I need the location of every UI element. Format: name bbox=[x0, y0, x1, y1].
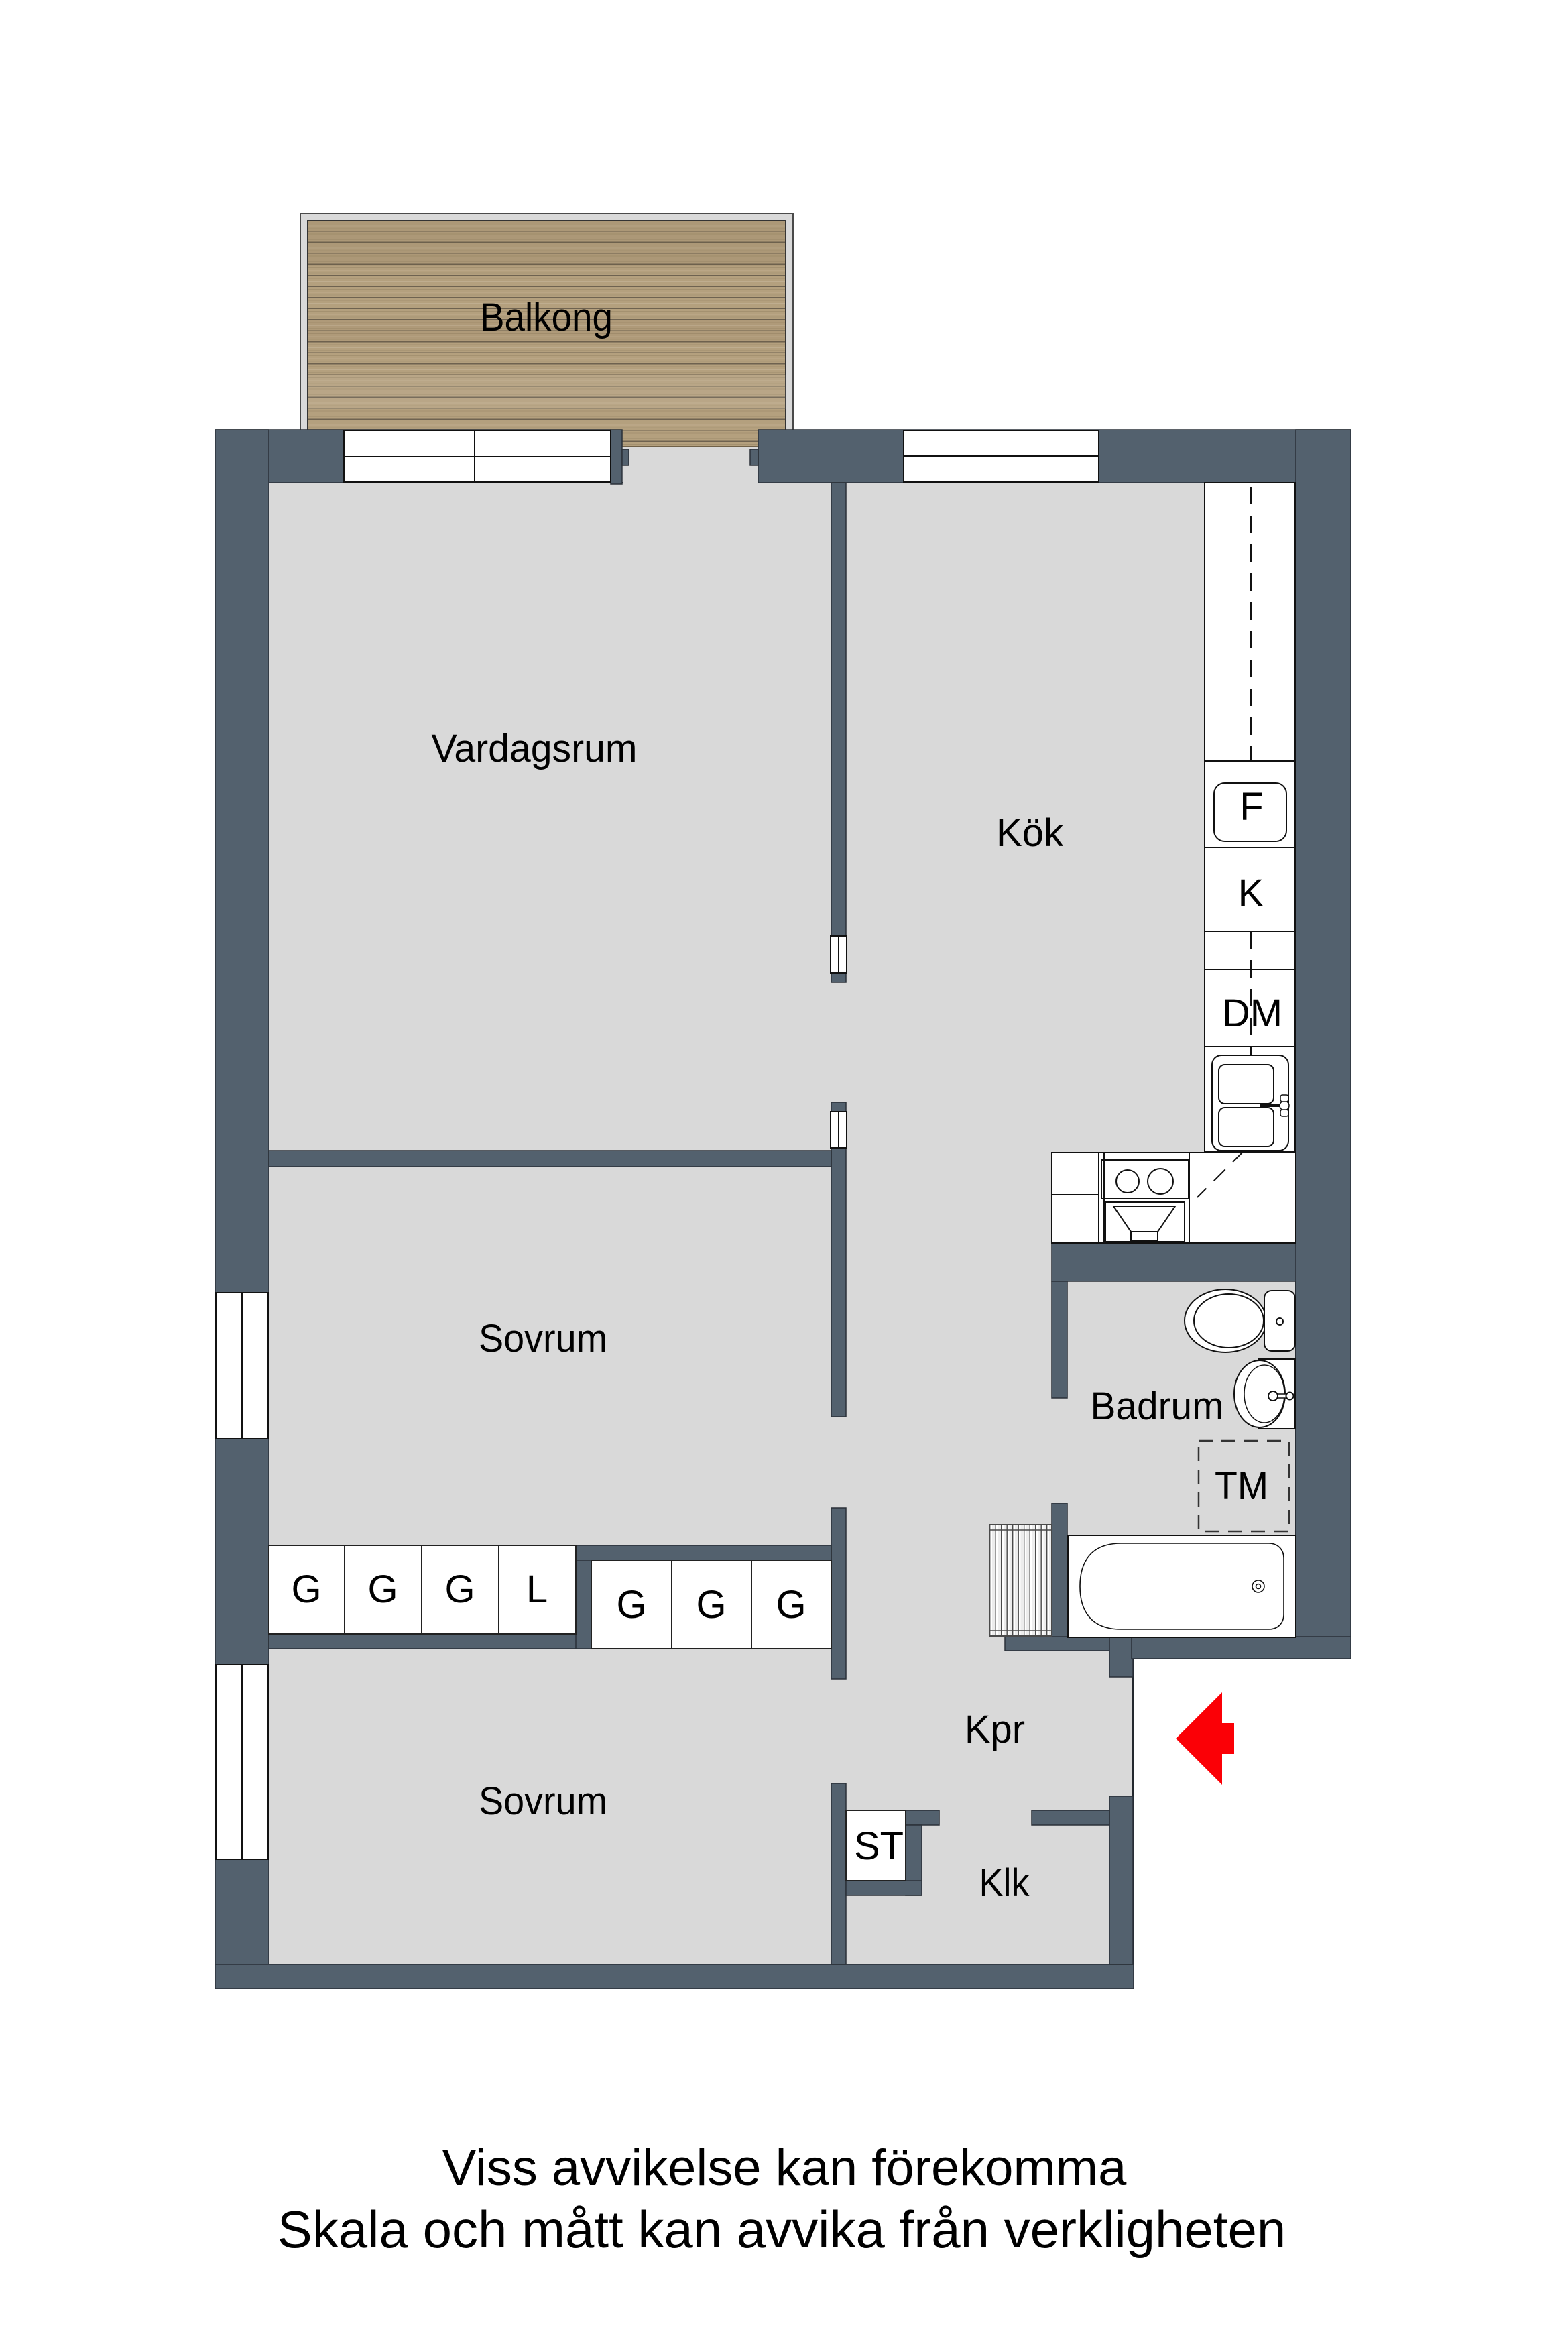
svg-text:ST: ST bbox=[854, 1824, 904, 1868]
svg-text:Balkong: Balkong bbox=[480, 296, 613, 339]
svg-text:G: G bbox=[444, 1568, 475, 1611]
svg-text:F: F bbox=[1240, 785, 1263, 829]
svg-text:Viss avvikelse kan förekomma: Viss avvikelse kan förekomma bbox=[442, 2139, 1128, 2196]
svg-text:Sovrum: Sovrum bbox=[479, 1317, 607, 1360]
svg-text:Sovrum: Sovrum bbox=[479, 1779, 607, 1823]
svg-text:Klk: Klk bbox=[979, 1861, 1030, 1905]
svg-text:TM: TM bbox=[1215, 1464, 1268, 1508]
svg-text:L: L bbox=[526, 1568, 548, 1611]
svg-text:G: G bbox=[696, 1583, 726, 1627]
svg-text:G: G bbox=[776, 1583, 806, 1627]
svg-text:G: G bbox=[367, 1568, 398, 1611]
svg-text:K: K bbox=[1238, 872, 1264, 915]
svg-text:Vardagsrum: Vardagsrum bbox=[432, 727, 638, 770]
svg-text:G: G bbox=[291, 1568, 321, 1611]
svg-text:G: G bbox=[616, 1583, 646, 1627]
svg-text:DM: DM bbox=[1222, 992, 1282, 1035]
svg-text:Badrum: Badrum bbox=[1091, 1385, 1224, 1428]
svg-text:Kpr: Kpr bbox=[965, 1708, 1025, 1751]
svg-text:Skala och mått kan avvika från: Skala och mått kan avvika från verklighe… bbox=[278, 2200, 1286, 2259]
svg-text:Kök: Kök bbox=[996, 811, 1064, 855]
